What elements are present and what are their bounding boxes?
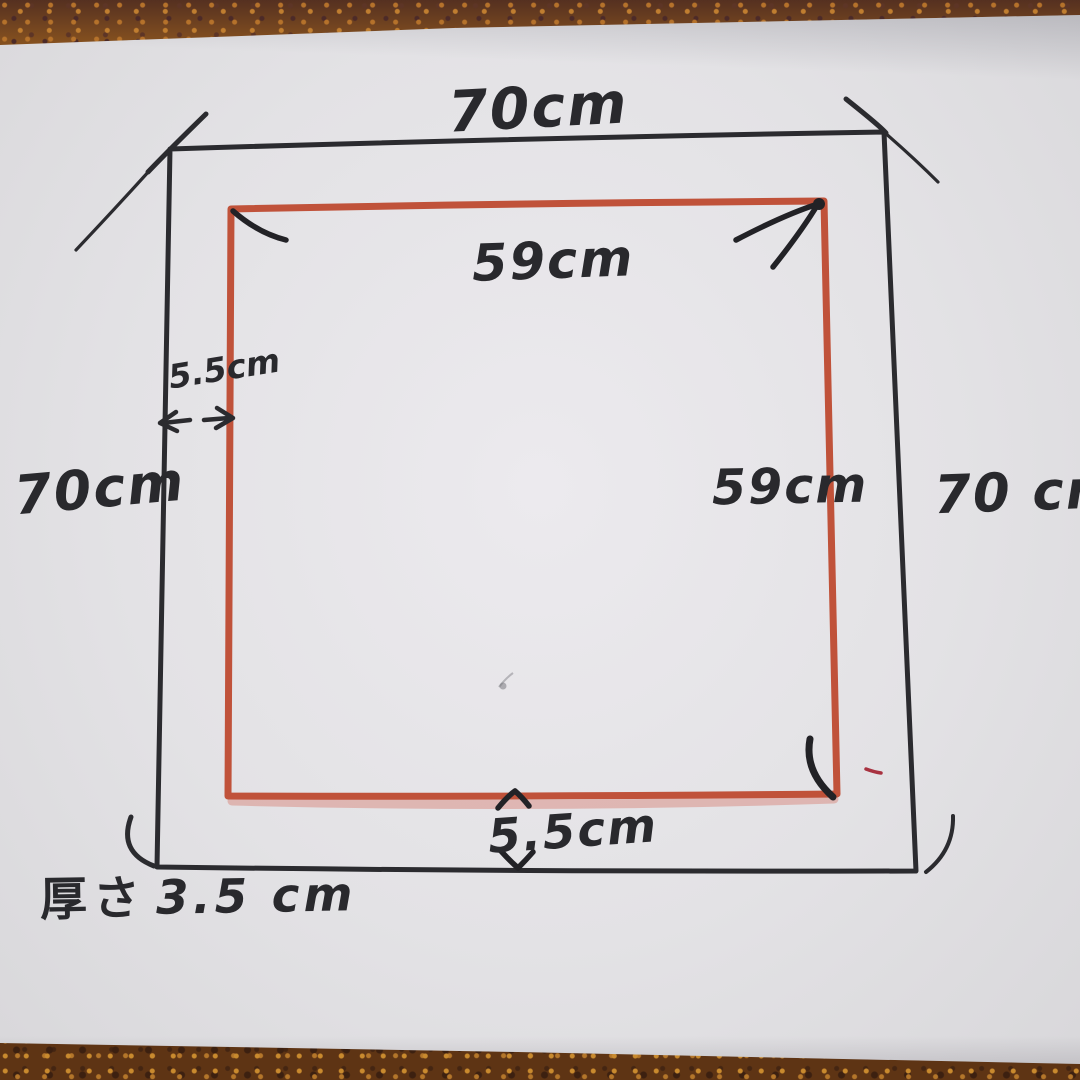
- label-right-outer-height: 70 cm: [933, 463, 1080, 523]
- right-arrow-shaft: [204, 418, 229, 420]
- label-top-outer-width: 70cm: [447, 75, 630, 141]
- left-gap-arrows: [160, 408, 233, 431]
- label-top-inner-width: 59cm: [471, 233, 635, 290]
- pencil-smudge: [499, 673, 513, 690]
- corner-tick-bottom-left: [128, 817, 154, 866]
- arrow-head-blob: [813, 198, 825, 210]
- corner-tick-top-left-b: [76, 170, 150, 250]
- inner-corner-tick-bottom-right: [809, 739, 833, 797]
- marker-smudge: [232, 799, 834, 805]
- label-left-outer-height: 70cm: [12, 455, 187, 524]
- corner-tick-top-right-a: [846, 99, 886, 133]
- label-bottom-gap: 5.5cm: [487, 802, 660, 861]
- corner-tick-top-right-b: [884, 132, 938, 182]
- label-thickness-prefix: 厚さ: [40, 871, 147, 928]
- corner-tick-top-left-a: [148, 114, 206, 172]
- label-thickness-value: 3.5 cm: [156, 867, 357, 925]
- label-thickness: 厚さ3.5 cm: [40, 871, 357, 924]
- corner-tick-bottom-right: [926, 816, 953, 872]
- inner-corner-tick-top-left: [233, 211, 286, 240]
- photo-of-dimension-sketch: 70cm 59cm 5.5cm 70cm 59cm 70 cm 5.5cm 厚さ…: [0, 0, 1080, 1080]
- red-dash-mark: [866, 769, 881, 773]
- label-right-inner-height: 59cm: [712, 461, 869, 513]
